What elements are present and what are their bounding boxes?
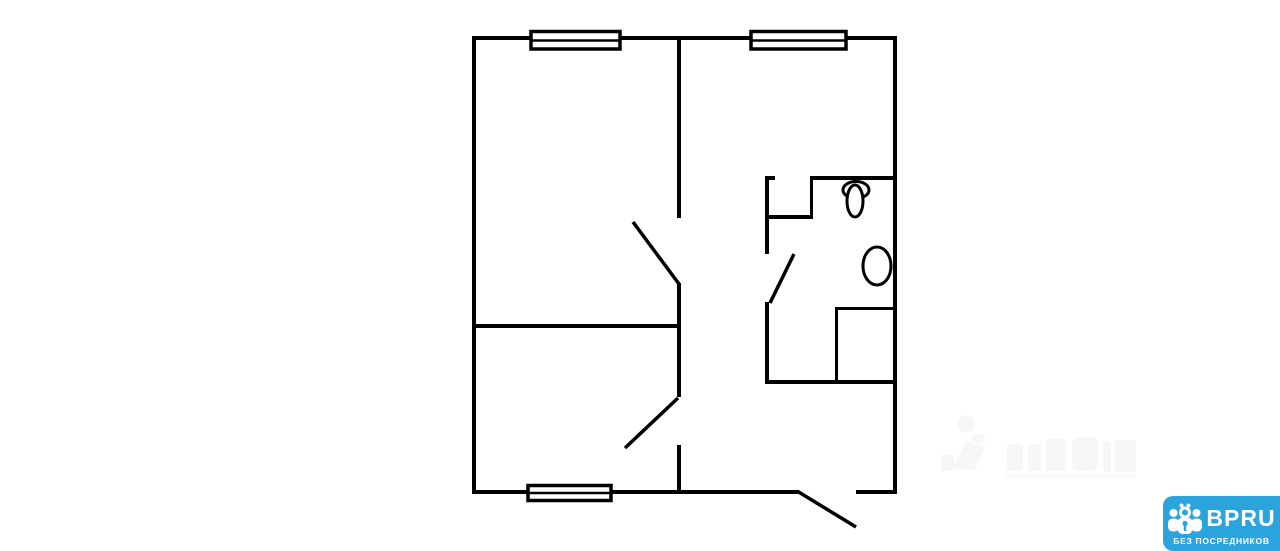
door-swing-room2 <box>625 398 678 448</box>
corridor-wall-middle <box>677 283 681 397</box>
watermark-glyph <box>1046 439 1066 471</box>
watermark-glyph <box>1103 442 1111 472</box>
watermark-glyph <box>1114 440 1136 472</box>
bathroom-wall-top <box>810 176 897 180</box>
logo-brand-text: BPRU <box>1206 507 1275 530</box>
window-top-right <box>751 32 846 50</box>
logo-tagline-text: БЕЗ ПОСРЕДНИКОВ <box>1173 536 1269 546</box>
toilet-icon <box>843 182 869 218</box>
window-bottom <box>528 486 611 501</box>
logo-row: BPRU <box>1167 503 1275 534</box>
bathroom-partition-horizontal <box>765 215 813 219</box>
floorplan-svg <box>0 0 1280 551</box>
corridor-wall-upper <box>677 36 681 218</box>
bathroom-wall-bottom <box>765 380 897 384</box>
watermark-figure-icon <box>971 433 985 443</box>
outer-wall-bottom-right <box>856 490 897 494</box>
window-top-left <box>531 32 620 50</box>
sink-icon <box>863 247 891 285</box>
floorplan-image: BPRU БЕЗ ПОСРЕДНИКОВ <box>0 0 1280 551</box>
door-swing-entrance <box>797 491 856 527</box>
outer-wall-right <box>893 36 897 494</box>
bathroom-wall-left-lower <box>765 302 769 384</box>
watermark <box>941 415 1136 478</box>
watermark-figure-icon <box>957 415 975 433</box>
watermark-glyph <box>1028 444 1041 471</box>
watermark-glyph <box>1072 437 1098 471</box>
bpru-logo: BPRU БЕЗ ПОСРЕДНИКОВ <box>1163 496 1280 551</box>
outer-wall-bottom-left <box>472 490 798 494</box>
door-swing-room1 <box>633 222 679 284</box>
bathroom-partition-vertical <box>810 176 813 219</box>
outer-wall-left <box>472 36 476 494</box>
closet-wall-left <box>835 307 838 384</box>
people-group-icon <box>1167 503 1203 534</box>
corridor-wall-lower <box>677 445 681 494</box>
watermark-glyph <box>1007 444 1023 471</box>
watermark-figure-icon <box>941 455 954 471</box>
watermark-glyph <box>1005 473 1135 478</box>
watermark-figure-icon <box>953 441 986 471</box>
door-swing-bathroom <box>770 254 794 303</box>
closet-wall-top <box>835 307 897 310</box>
bathroom-wall-top-stub <box>765 176 775 180</box>
room-divider-wall <box>472 324 681 328</box>
